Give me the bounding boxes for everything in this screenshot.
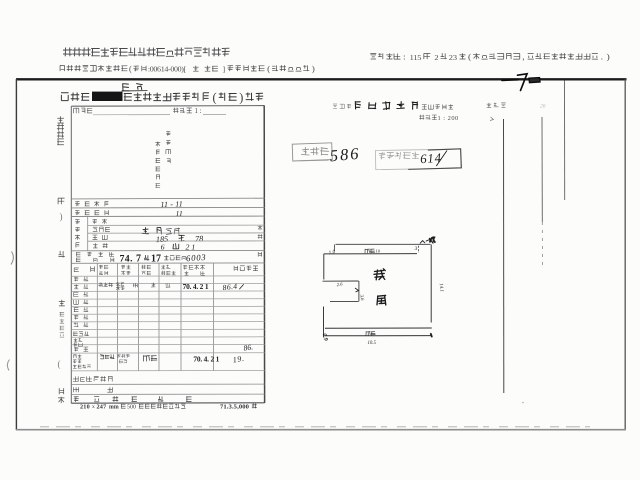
svg-text:mm: mm xyxy=(109,404,119,410)
svg-text:247: 247 xyxy=(97,404,107,411)
svg-text:78: 78 xyxy=(195,234,204,243)
svg-text:(: ( xyxy=(468,53,471,63)
svg-text:115: 115 xyxy=(410,53,422,62)
svg-text:(: ( xyxy=(58,359,61,369)
svg-text:): ) xyxy=(239,91,243,105)
svg-text:): ) xyxy=(60,212,63,222)
svg-text:(: ( xyxy=(267,64,270,74)
svg-text:71.3.5,000: 71.3.5,000 xyxy=(220,403,250,410)
svg-text:11: 11 xyxy=(176,209,183,218)
svg-text:14.1: 14.1 xyxy=(438,283,444,292)
svg-text:1 : 200: 1 : 200 xyxy=(438,115,459,122)
svg-text:586: 586 xyxy=(329,144,361,166)
svg-text:86.: 86. xyxy=(243,342,254,352)
svg-text:26: 26 xyxy=(540,104,546,110)
svg-text:): ) xyxy=(607,53,610,63)
svg-text:.: . xyxy=(601,53,603,63)
svg-text:614: 614 xyxy=(420,151,443,166)
svg-text:86.4: 86.4 xyxy=(222,282,238,293)
svg-text::: : xyxy=(403,53,406,63)
svg-text:70. 4. 2 1: 70. 4. 2 1 xyxy=(193,354,219,363)
svg-text:(: ( xyxy=(213,91,217,105)
svg-text:x: x xyxy=(92,404,95,410)
svg-text::00614-000)[: :00614-000)[ xyxy=(148,64,187,73)
svg-text:): ) xyxy=(312,64,315,74)
svg-text:70. 4. 2 1: 70. 4. 2 1 xyxy=(183,282,209,291)
svg-text:1 :: 1 : xyxy=(195,108,202,115)
svg-text:3: 3 xyxy=(414,246,418,252)
svg-text:,: , xyxy=(522,53,524,63)
svg-text:(: ( xyxy=(129,65,132,74)
svg-text:2: 2 xyxy=(434,53,438,62)
svg-text:10.5: 10.5 xyxy=(368,341,377,346)
svg-text:6003: 6003 xyxy=(186,252,207,263)
svg-text:23: 23 xyxy=(449,53,457,62)
svg-text:210: 210 xyxy=(80,404,90,411)
svg-text:500: 500 xyxy=(127,404,136,410)
svg-text:74.: 74. xyxy=(120,253,134,264)
svg-text:]: ] xyxy=(223,64,226,73)
svg-text:2 1: 2 1 xyxy=(186,242,196,251)
